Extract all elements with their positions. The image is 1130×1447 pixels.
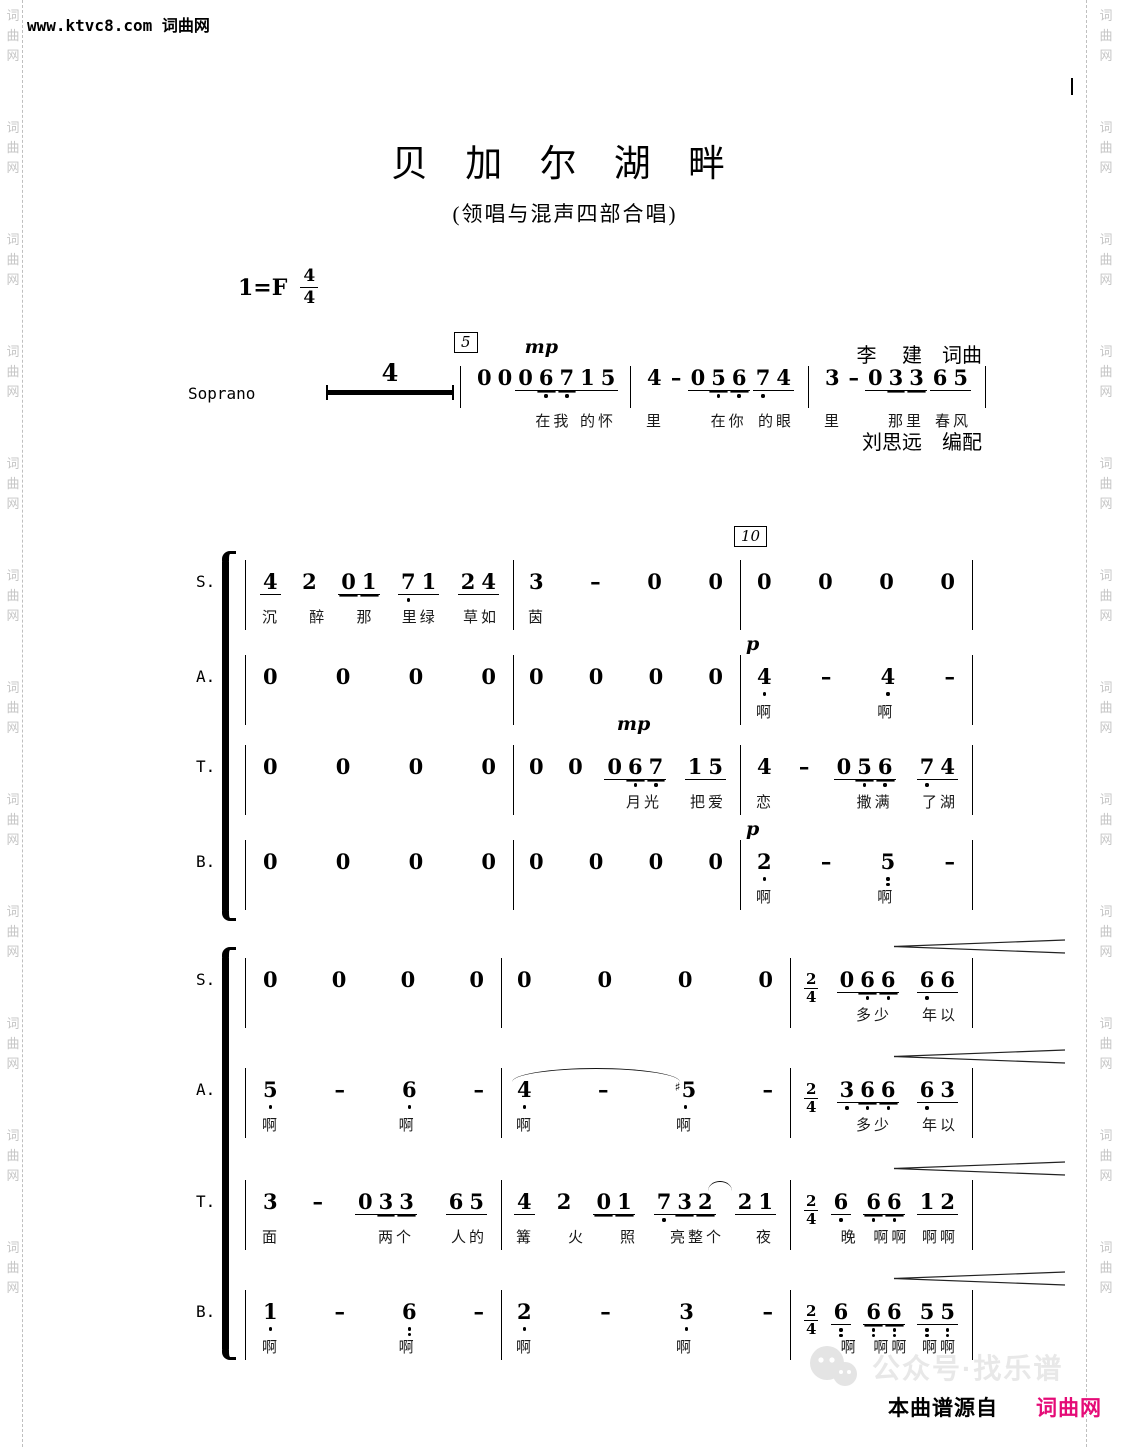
accidental-sharp: ♯ (675, 1080, 681, 1094)
lyric-syllable (594, 1336, 616, 1357)
octave-dots (872, 1218, 875, 1221)
note-token: – (942, 665, 959, 693)
beam-group: 15 (685, 755, 726, 784)
edge-watermark: 词曲网 (5, 342, 21, 402)
note-token: 4 (754, 665, 775, 696)
note-token: 0 (705, 570, 726, 598)
note-digit: 4 (478, 570, 499, 595)
ts-denominator: 4 (806, 1099, 816, 1115)
note-digit: 4 (754, 665, 775, 689)
measure: 4–05674恋撒满了湖 (740, 745, 973, 815)
ts-numerator: 2 (804, 1304, 818, 1321)
note-digit: 1 (685, 755, 706, 780)
lyric-syllable (594, 1114, 616, 1135)
note-digit: 1 (260, 1300, 281, 1324)
note-token: 0 (526, 850, 547, 878)
note-token: 0 (260, 968, 281, 996)
beam-group: 6 (831, 1300, 852, 1337)
lyric-syllable: 篝 (514, 1226, 536, 1247)
note-digit: 5 (260, 1078, 281, 1102)
lyric-syllable: 啊 (397, 1336, 419, 1357)
octave-dots (737, 394, 740, 397)
lyrics-row: 面两个人的 (246, 1226, 501, 1247)
note-digit: 4 (773, 366, 794, 391)
note-digit: 6 (878, 1078, 899, 1103)
note-token: 3 (396, 1190, 417, 1219)
note-digit: 4 (260, 570, 281, 595)
note-token: 0 (406, 755, 427, 783)
note-token: – (818, 665, 835, 693)
notes-row: 0000 (740, 570, 972, 598)
note-token: 0 (594, 968, 615, 996)
note-digit: 0 (594, 968, 615, 992)
edge-watermark: 词曲网 (5, 6, 21, 66)
octave-dot (662, 1218, 665, 1221)
note-digit: 0 (705, 850, 726, 874)
note-digit: 0 (644, 570, 665, 594)
note-digit: 0 (865, 366, 886, 391)
note-token: 7 (654, 1190, 675, 1222)
note-digit: 6 (536, 366, 557, 391)
measure: 1–6–啊啊 (245, 1290, 502, 1360)
note-token: ♯5 (672, 1078, 699, 1109)
note-digit: 0 (646, 665, 667, 689)
lyric-syllable (804, 1336, 826, 1357)
note-token: 0 (705, 665, 726, 693)
lyric-syllable: 草如 (463, 606, 499, 627)
multirest-count: 4 (320, 358, 460, 387)
note-token: 3 (822, 366, 843, 394)
note-digit: 6 (930, 366, 951, 391)
note-token: 0 (754, 570, 775, 598)
measure-number: 10 (734, 526, 767, 547)
notes-row: 42017124 (246, 570, 513, 602)
note-token: 0 (260, 755, 281, 783)
note-digit: 0 (688, 366, 709, 391)
note-token: 6 (863, 1300, 884, 1337)
note-digit: 4 (754, 755, 775, 779)
notes-row: 4–♯5– (500, 1078, 790, 1109)
edge-watermark: 词曲网 (1098, 790, 1114, 850)
note-token: – (759, 1300, 776, 1328)
note-token: 3 (906, 366, 927, 395)
note-digit: 1 (755, 1190, 776, 1215)
note-token: 5 (878, 850, 899, 886)
lyrics-row: 里在你的眼 (630, 410, 808, 431)
octave-dots (893, 1218, 896, 1221)
octave-dots (407, 598, 410, 601)
note-digit: 6 (831, 1190, 852, 1215)
lyric-syllable: 年以 (922, 1004, 958, 1025)
note-token: 3 (886, 366, 907, 395)
lyric-syllable: 啊 (514, 1336, 536, 1357)
octave-dots (839, 1218, 842, 1221)
note-digit: 0 (755, 968, 776, 992)
note-token: 0 (837, 968, 858, 997)
note-digit: 4 (514, 1190, 535, 1215)
note-token: 0 (478, 755, 499, 783)
note-digit: 6 (857, 1078, 878, 1103)
note-token: 0 (333, 850, 354, 878)
beam-group: 55 (917, 1300, 958, 1337)
beam-group: 24 (458, 570, 499, 599)
measure: 4 (320, 366, 461, 408)
note-token: 0 (586, 665, 607, 693)
note-digit: 0 (260, 755, 281, 779)
meter-numerator: 4 (300, 268, 318, 288)
octave-dot (887, 1106, 890, 1109)
notes-row: 0000 (246, 968, 501, 996)
note-token: 5 (854, 755, 875, 787)
part-label: B. (196, 852, 215, 871)
edge-watermark: 词曲网 (5, 454, 21, 514)
note-digit: – (942, 850, 959, 874)
note-token: 4 (644, 366, 665, 394)
lyric-syllable: 了湖 (922, 791, 958, 812)
note-digit: – (597, 1300, 614, 1324)
beam-group: 12 (917, 1190, 958, 1219)
note-digit: 4 (878, 665, 899, 689)
octave-dots (886, 692, 889, 695)
note-digit: 3 (886, 366, 907, 391)
octave-dot (925, 783, 928, 786)
lyric-syllable: 沉 (260, 606, 282, 627)
beam-group: 63 (917, 1078, 958, 1110)
note-digit: 7 (557, 366, 578, 391)
beam-group: 01 (338, 570, 379, 599)
notes-row: 0000 (512, 665, 740, 693)
part-label: A. (196, 1080, 215, 1099)
octave-dot (863, 783, 866, 786)
note-token: 6 (863, 1190, 884, 1222)
lyric-syllable: 月光 (626, 791, 662, 812)
note-token: 6 (857, 968, 878, 1000)
octave-dots (565, 394, 568, 397)
note-digit: 0 (526, 850, 547, 874)
note-token: 4 (260, 570, 281, 599)
octave-dot (737, 394, 740, 397)
measure-number: 5 (454, 332, 478, 353)
dynamic-marking: p (746, 633, 759, 655)
measure: 4–♯5–啊啊 (500, 1068, 791, 1138)
octave-dot (685, 1327, 688, 1330)
note-token: 6 (831, 1300, 852, 1337)
note-token: 0 (406, 850, 427, 878)
notes-row: 420173221 (500, 1190, 790, 1222)
note-digit: 6 (446, 1190, 467, 1215)
lyric-syllable: 那里 (888, 410, 924, 431)
beam-group: 033 (865, 366, 927, 395)
beam-group: 033 (355, 1190, 417, 1219)
measure: 0000 (245, 655, 514, 725)
note-token: 6 (729, 366, 750, 398)
note-token: 0 (688, 366, 709, 395)
note-digit: – (668, 366, 685, 390)
note-token: 7 (646, 755, 667, 787)
note-digit: 6 (917, 1078, 938, 1103)
note-digit: 5 (950, 366, 971, 391)
lyric-syllable (645, 606, 667, 627)
dynamic-marking: mp (617, 713, 650, 735)
beam-group: 067 (515, 366, 577, 398)
note-token: 3 (676, 1300, 697, 1331)
note-token: 0 (646, 850, 667, 878)
measure: 42017124沉醉那里绿草如 (245, 560, 514, 630)
note-token: 5 (950, 366, 971, 395)
note-digit: 0 (754, 570, 775, 594)
note-token: 2 (514, 1300, 535, 1331)
note-digit: – (332, 1078, 349, 1102)
octave-dot (684, 1105, 687, 1108)
note-digit: 0 (586, 850, 607, 874)
lyric-syllable (585, 606, 607, 627)
multirest-bar (326, 390, 454, 395)
note-token: 2 (695, 1190, 716, 1219)
beam-group: 067 (604, 755, 666, 787)
note-token: 6 (399, 1078, 420, 1109)
measure: 0000 (245, 958, 502, 1028)
beam-group: 65 (446, 1190, 487, 1219)
note-token: 0 (865, 366, 886, 395)
time-signature-change: 24 (804, 1082, 818, 1115)
note-digit: 0 (675, 968, 696, 992)
edge-watermark: 词曲网 (1098, 6, 1114, 66)
note-token: 6 (875, 755, 896, 787)
beam-group: 066 (837, 968, 899, 1000)
octave-dot (763, 877, 766, 880)
note-digit: 5 (854, 755, 875, 780)
note-token: – (846, 366, 863, 394)
note-token: 0 (338, 570, 359, 599)
lyrics-row: 沉醉那里绿草如 (246, 606, 513, 627)
measure: 2466655啊啊啊啊啊 (790, 1290, 973, 1360)
note-digit: 0 (526, 665, 547, 689)
lyric-syllable (804, 1226, 826, 1247)
measure: 000010 (740, 560, 973, 630)
octave-dot (654, 783, 657, 786)
note-digit: 2 (695, 1190, 716, 1215)
note-token: 4 (878, 665, 899, 696)
note-digit: – (818, 665, 835, 689)
note-token: 0 (937, 570, 958, 598)
lyric-syllable: 的眼 (758, 410, 794, 431)
note-token: 0 (466, 968, 487, 996)
notes-row: 2466655 (790, 1300, 972, 1337)
note-digit: – (942, 665, 959, 689)
note-digit: 0 (937, 570, 958, 594)
lyric-syllable: 啊 (674, 1114, 696, 1135)
lyrics-row: 啊啊 (500, 1336, 790, 1357)
note-digit: 3 (906, 366, 927, 391)
octave-dots (886, 877, 889, 886)
lyric-syllable (328, 1336, 350, 1357)
note-token: 5 (937, 1300, 958, 1337)
lyric-syllable: 啊 (260, 1114, 282, 1135)
octave-dots (408, 1327, 411, 1336)
lyric-syllable: 醉 (307, 606, 329, 627)
note-digit: 6 (863, 1190, 884, 1215)
measure: 3–00茵 (512, 560, 741, 630)
beam-group: 4 (260, 570, 281, 599)
lyrics-row: 啊啊 (246, 1336, 501, 1357)
note-token: 4 (937, 755, 958, 784)
note-digit: 2 (458, 570, 479, 595)
measure: 0000 (512, 840, 741, 910)
note-token: 4 (754, 755, 775, 783)
beam-group: 6 (831, 1190, 852, 1222)
lyric-syllable: 啊 (754, 886, 776, 907)
lyric-syllable: 照 (618, 1226, 640, 1247)
lyric-syllable: 春风 (935, 410, 971, 431)
octave-dot (523, 1327, 526, 1330)
lyric-syllable: 两个 (378, 1226, 414, 1247)
note-digit: 3 (396, 1190, 417, 1215)
note-token: 0 (876, 570, 897, 598)
octave-dot (866, 996, 869, 999)
note-digit: – (818, 850, 835, 874)
measure: 5–6–啊啊 (245, 1068, 502, 1138)
octave-dots (887, 996, 890, 999)
note-token: 0 (755, 968, 776, 996)
note-token: 3 (937, 1078, 958, 1107)
crescendo-hairpin (892, 939, 1067, 954)
lyric-syllable (754, 1114, 776, 1135)
beam-group: 66 (917, 968, 958, 1000)
edge-watermark: 词曲网 (1098, 454, 1114, 514)
note-token: 2 (754, 850, 775, 881)
lyric-syllable: 的怀 (580, 410, 616, 431)
note-digit: 6 (878, 968, 899, 993)
note-digit: 7 (398, 570, 419, 595)
note-token: 1 (755, 1190, 776, 1219)
note-digit: 0 (876, 570, 897, 594)
octave-dots (523, 1327, 526, 1330)
note-token: 0 (333, 665, 354, 693)
note-token: – (597, 1300, 614, 1328)
note-digit: 3 (837, 1078, 858, 1103)
note-token: 6 (930, 366, 951, 395)
note-digit: 7 (753, 366, 774, 391)
octave-dot (761, 394, 764, 397)
lyrics-row: 啊啊 (740, 886, 972, 907)
beam-group: 65 (930, 366, 971, 395)
edge-watermark: 词曲网 (5, 230, 21, 290)
note-digit: 0 (705, 665, 726, 689)
margin-mark (1071, 78, 1073, 95)
note-digit: 3 (937, 1078, 958, 1103)
lyrics-row: 月光把爱 (512, 791, 740, 812)
note-token: 2 (299, 570, 320, 598)
notes-row: 1–6– (246, 1300, 501, 1336)
note-digit: 0 (260, 968, 281, 992)
credit-arranger: 刘思远 编配 (760, 429, 982, 458)
note-digit: 0 (333, 755, 354, 779)
octave-dot (717, 394, 720, 397)
lyric-syllable: 啊啊 (922, 1226, 958, 1247)
note-token: 5 (708, 366, 729, 398)
note-digit: 1 (577, 366, 598, 391)
note-digit: 0 (260, 850, 281, 874)
note-digit: 3 (376, 1190, 397, 1215)
note-digit: 2 (937, 1190, 958, 1215)
octave-dot (408, 1105, 411, 1108)
octave-dot (893, 1218, 896, 1221)
lyric-syllable: 把爱 (690, 791, 726, 812)
measure: 3–03365面两个人的 (245, 1180, 502, 1250)
lyric-syllable (319, 1226, 341, 1247)
note-digit: 2 (754, 850, 775, 874)
lyrics-row: 多少年以 (790, 1004, 972, 1025)
beam-group: 056 (834, 755, 896, 787)
edge-watermark: 词曲网 (5, 790, 21, 850)
lyric-syllable: 啊 (260, 1336, 282, 1357)
lyric-syllable: 啊啊 (873, 1336, 909, 1357)
notes-row: 4–05674 (740, 755, 972, 787)
measure: 0006715在我的怀mp5 (460, 366, 631, 408)
note-digit: 0 (514, 968, 535, 992)
note-digit: 6 (625, 755, 646, 780)
note-token: 0 (329, 968, 350, 996)
note-token: – (310, 1190, 327, 1218)
note-token: 7 (917, 755, 938, 787)
note-digit: 0 (338, 570, 359, 595)
note-token: 6 (536, 366, 557, 398)
note-token: 2 (554, 1190, 575, 1218)
notes-row: 5–6– (246, 1078, 501, 1109)
octave-dot (925, 996, 928, 999)
note-token: 0 (705, 850, 726, 878)
site-watermark: www.ktvc8.com 词曲网 (27, 12, 210, 36)
octave-dots (763, 692, 766, 695)
note-digit: 4 (644, 366, 665, 390)
ts-denominator: 4 (806, 1321, 816, 1337)
note-token: 6 (857, 1078, 878, 1110)
note-digit: – (332, 1300, 349, 1324)
note-digit: 5 (466, 1190, 487, 1215)
note-token: 3 (674, 1190, 695, 1219)
beam-group: 21 (735, 1190, 776, 1219)
measure: 2436663多少年以 (790, 1068, 973, 1138)
octave-dot (565, 394, 568, 397)
note-token: 6 (917, 968, 938, 1000)
note-digit: 6 (857, 968, 878, 993)
note-token: 0 (646, 665, 667, 693)
note-token: 6 (884, 1190, 905, 1222)
notes-row: 3–00 (512, 570, 740, 598)
note-digit: 0 (526, 755, 547, 779)
note-digit: – (310, 1190, 327, 1214)
note-token: 0 (355, 1190, 376, 1219)
note-token: 0 (815, 570, 836, 598)
notes-row: 3–03365 (808, 366, 985, 395)
note-digit: 0 (593, 1190, 614, 1215)
note-token: 6 (446, 1190, 467, 1219)
note-digit: 0 (355, 1190, 376, 1215)
octave-dots (523, 1105, 526, 1108)
part-label: S. (196, 970, 215, 989)
time-signature-change: 24 (804, 1194, 818, 1227)
note-token: 0 (478, 665, 499, 693)
lyric-syllable: 恋 (754, 791, 776, 812)
part-label: S. (196, 572, 215, 591)
octave-dots (544, 394, 547, 397)
octave-dots (863, 783, 866, 786)
octave-dot (407, 598, 410, 601)
octave-dot (523, 1105, 526, 1108)
octave-dot (839, 1218, 842, 1221)
notes-row: 0006715 (512, 755, 740, 787)
part-label: B. (196, 1302, 215, 1321)
